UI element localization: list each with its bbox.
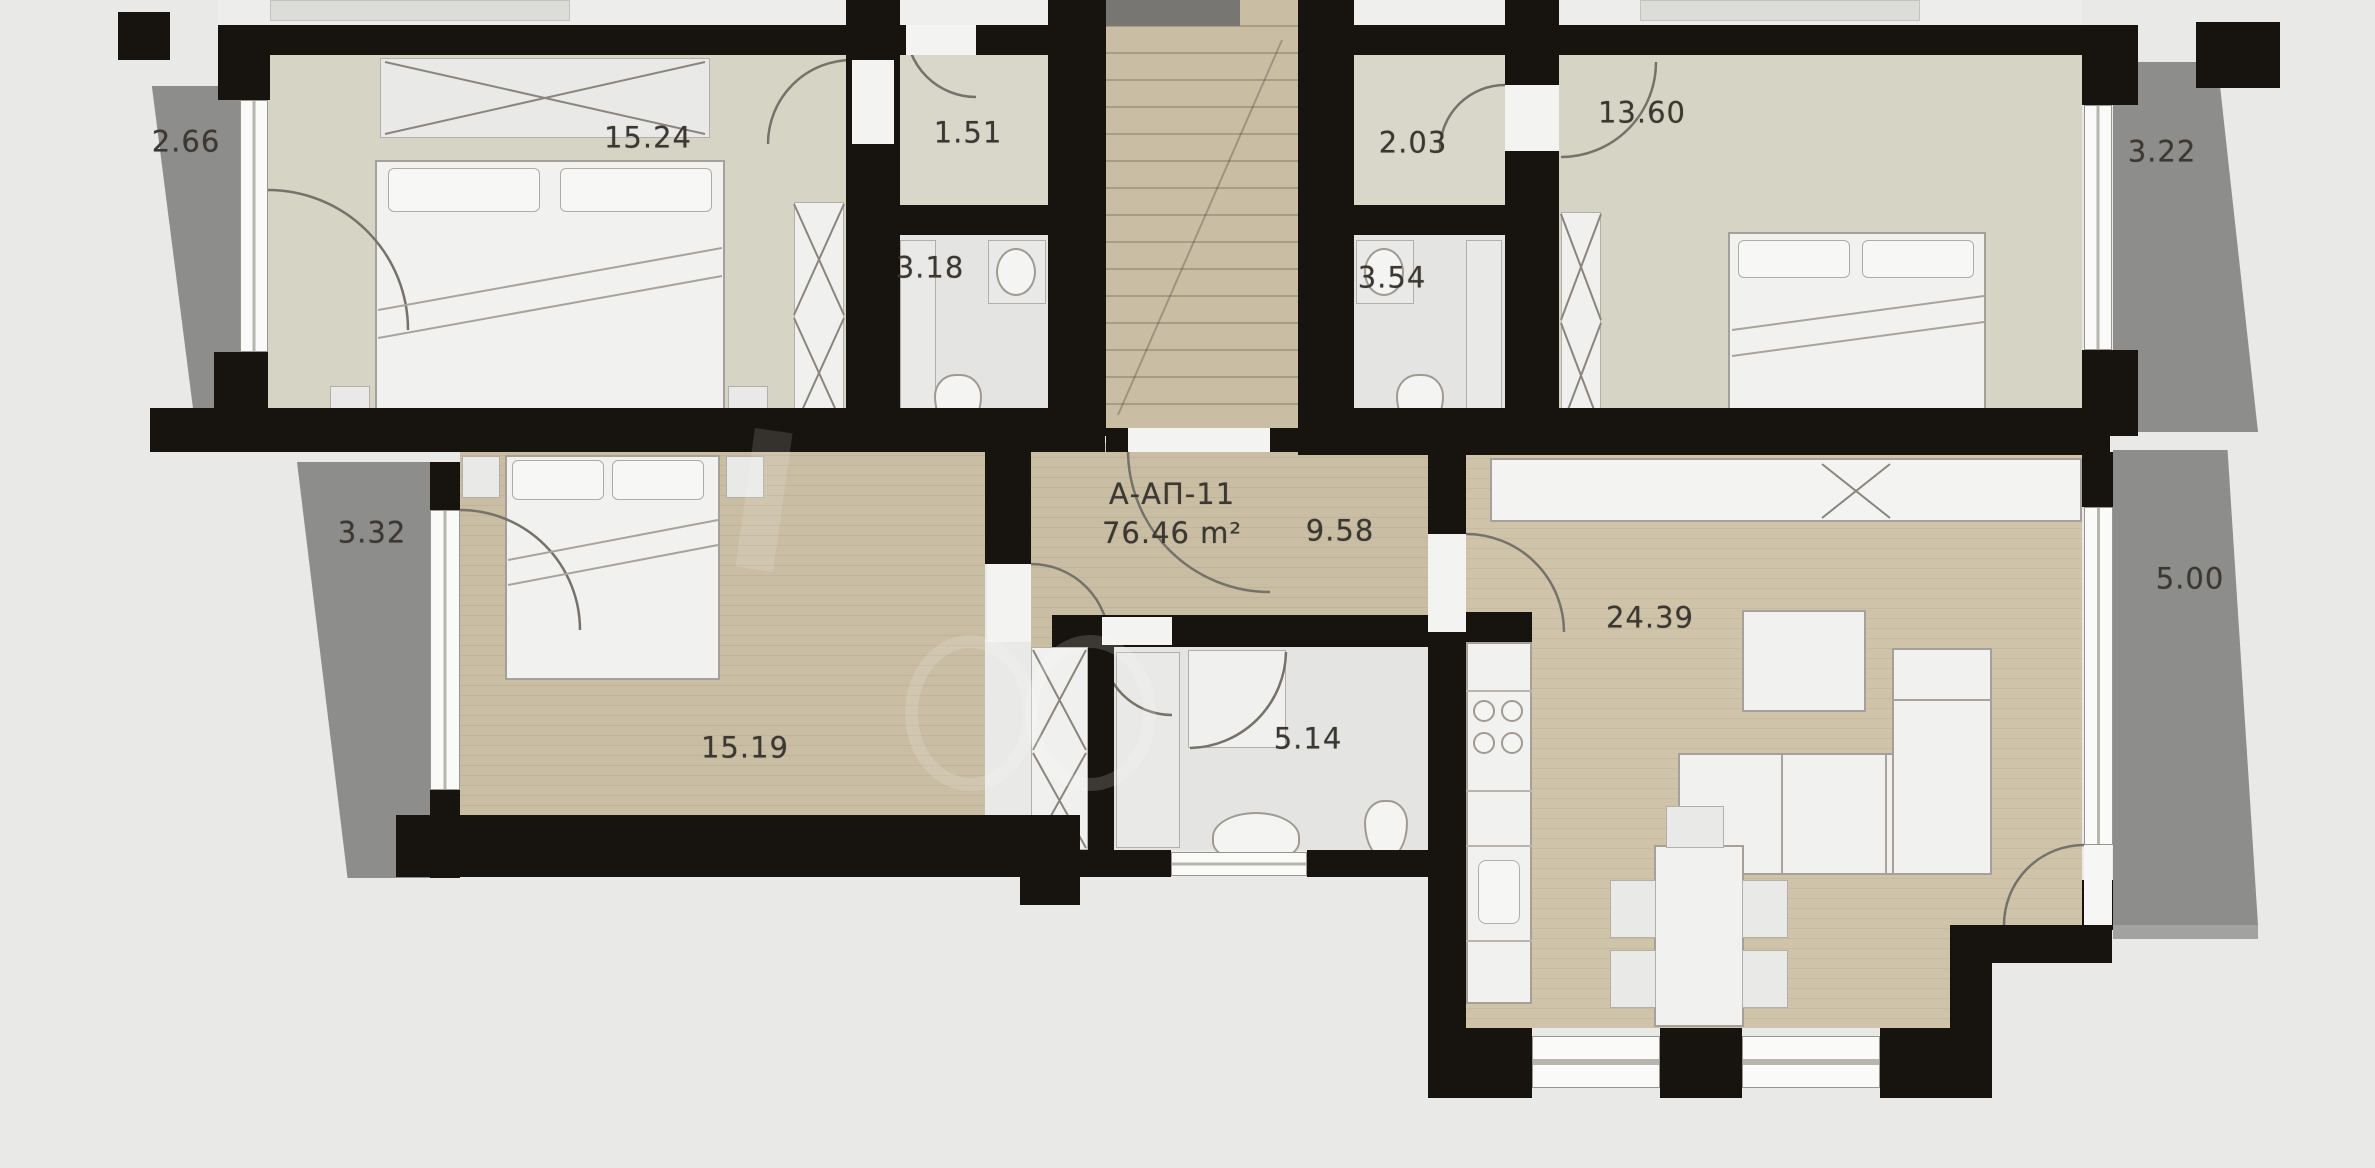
area-label-entry-top-right: 2.03: [1379, 129, 1448, 158]
counter-divider: [1466, 845, 1532, 847]
wall: [430, 462, 460, 510]
wall: [898, 205, 1050, 235]
wall: [1054, 850, 1171, 877]
wall: [1298, 408, 1460, 455]
window-living-2: [1742, 1036, 1880, 1088]
window-bathroom-bottom: [1171, 852, 1307, 876]
wall: [1270, 428, 1298, 452]
wardrobe-column-left: [794, 202, 844, 432]
door-apartment-entry: [1128, 428, 1270, 452]
area-label-balcony-mid-left: 3.32: [338, 519, 407, 548]
watermark-artifact: [905, 635, 1036, 791]
wall: [2082, 452, 2113, 507]
door-balcony-right: [2084, 845, 2112, 925]
wall: [1354, 205, 1505, 235]
apartment-area: 76.46 m²: [1102, 514, 1242, 553]
coffee-table: [1742, 610, 1866, 712]
cutoff-furniture-right: [1640, 0, 1920, 21]
hob-burner: [1473, 732, 1495, 754]
area-label-bathroom-bottom: 5.14: [1274, 725, 1343, 754]
door-hall-living: [1428, 534, 1466, 632]
wall: [1460, 408, 2110, 455]
wall: [150, 408, 1105, 452]
watermark-artifact: [1025, 635, 1156, 791]
door-bedroom-top-left: [852, 60, 894, 144]
apartment-code: А-АП-11: [1102, 475, 1242, 514]
wall: [1505, 0, 1559, 436]
wall: [1307, 850, 1430, 877]
counter-divider: [1466, 790, 1532, 792]
hob-burner: [1501, 732, 1523, 754]
area-label-bath-top-left: 3.18: [896, 254, 965, 283]
area-label-bedroom-top-left: 15.24: [604, 124, 692, 153]
nightstand: [462, 456, 500, 498]
dining-chair: [1666, 806, 1724, 848]
tv-console: [1490, 458, 2082, 522]
wall: [2196, 22, 2280, 88]
area-label-bedroom-bottom: 15.19: [701, 734, 789, 763]
area-label-balcony-top-right: 3.22: [2128, 138, 2197, 167]
pillow: [1862, 240, 1974, 278]
area-label-entry-top-left: 1.51: [934, 119, 1003, 148]
window-balcony-top-right: [2084, 105, 2112, 350]
wall: [1020, 877, 1080, 905]
hob-burner: [1473, 700, 1495, 722]
wall: [1298, 0, 1354, 436]
dining-chair: [1742, 880, 1788, 938]
counter-divider: [1466, 690, 1532, 692]
wall: [1660, 1028, 1742, 1098]
wall: [1428, 632, 1466, 1032]
window-balcony-mid-left: [430, 510, 460, 790]
area-label-bath-top-right: 3.54: [1358, 264, 1427, 293]
floor-stairwell: [1106, 0, 1298, 430]
cutoff-room-entry-left: [900, 0, 1048, 25]
window-balcony-top-left: [240, 100, 268, 352]
vanity-bath-top-right: [1466, 240, 1502, 430]
pillow: [560, 168, 712, 212]
window-living-1: [1532, 1036, 1660, 1088]
cutoff-room-entry-right: [1354, 0, 1505, 25]
door-entry-top-right: [1505, 85, 1559, 151]
wall: [2082, 25, 2138, 105]
door-bedroom-bottom: [987, 564, 1031, 642]
area-label-entry-hall: 9.58: [1306, 517, 1375, 546]
counter-divider: [1466, 940, 1532, 942]
wall: [1428, 1028, 1532, 1098]
wall: [118, 12, 170, 60]
wall: [1354, 25, 2110, 55]
window-balcony-right: [2084, 507, 2113, 845]
wall: [1428, 452, 1466, 534]
sofa-chaise: [1892, 648, 1992, 875]
wall: [1106, 428, 1128, 452]
apartment-label: А-АП-11 76.46 m²: [1102, 475, 1242, 553]
cutoff-furniture-left: [270, 0, 570, 21]
wall: [1466, 612, 1532, 642]
door-entry-top-left: [906, 25, 976, 55]
wall: [1950, 925, 1992, 1032]
pillow: [512, 460, 604, 500]
sink-bath-top-left: [996, 248, 1036, 296]
balcony-right-sill: [2113, 925, 2258, 939]
hob-burner: [1501, 700, 1523, 722]
pillow: [388, 168, 540, 212]
dining-chair: [1610, 880, 1656, 938]
wall: [430, 790, 460, 878]
dining-chair: [1610, 950, 1656, 1008]
balcony-right: [2113, 450, 2258, 925]
stairwell-landing: [1106, 0, 1240, 26]
wardrobe-column-right: [1561, 212, 1601, 430]
wall: [1990, 925, 2112, 963]
wall: [396, 815, 1080, 877]
floor-plan: 2.66 15.24 1.51 3.18 2.03 3.54 13.60 3.2…: [0, 0, 2375, 1168]
dining-chair: [1742, 950, 1788, 1008]
area-label-balcony-top-left: 2.66: [152, 128, 221, 157]
wall: [985, 452, 1031, 564]
area-label-living-room: 24.39: [1606, 604, 1694, 633]
wall: [218, 25, 878, 55]
shower: [1188, 650, 1286, 748]
area-label-balcony-right: 5.00: [2156, 565, 2225, 594]
dining-table: [1654, 845, 1744, 1027]
kitchen-counter: [1466, 642, 1532, 1004]
pillow: [612, 460, 704, 500]
pillow: [1738, 240, 1850, 278]
area-label-bedroom-top-right: 13.60: [1598, 99, 1686, 128]
wall: [1880, 1028, 1992, 1098]
wall: [1048, 0, 1106, 436]
kitchen-sink: [1478, 860, 1520, 924]
